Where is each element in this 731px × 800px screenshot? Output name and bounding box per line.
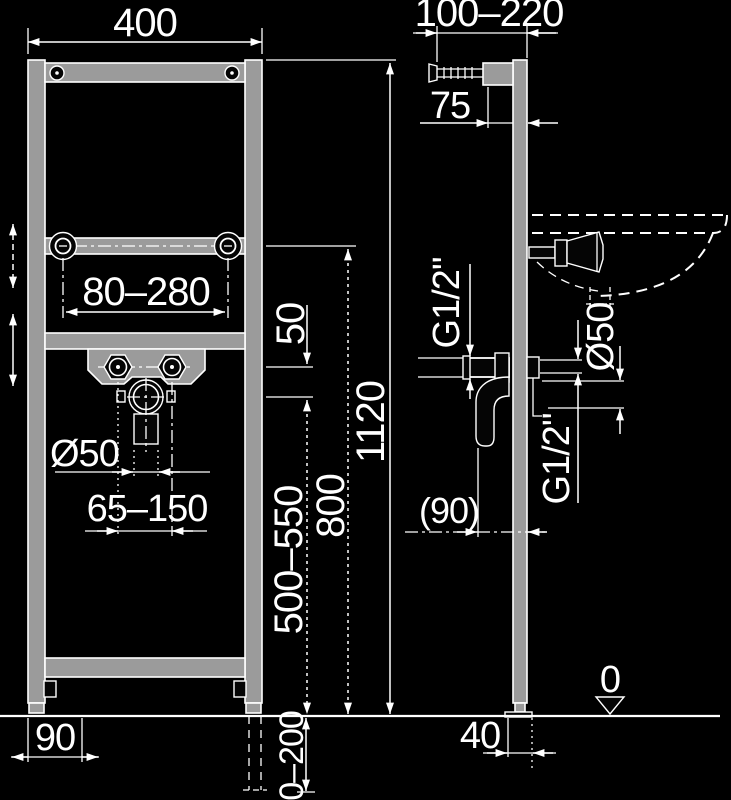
rear-fitting [527,357,542,416]
wall-bracket [483,63,513,85]
lower-crossbar [45,333,245,349]
foot-left [29,703,44,713]
front-view [13,60,267,790]
label-water-thread-right: G1/2" [536,414,578,505]
drain-socket [117,378,175,452]
water-fitting-left [104,355,132,379]
dim-drain-pipe-diameter: Ø50 [580,303,622,372]
label-water-thread-left: G1/2" [426,258,468,349]
dim-wall-distance: 100–220 [415,0,564,35]
front-right-rail [245,60,262,703]
side-view [418,60,727,717]
front-dimensions: 400 80–280 50 500–550 800 1120 0–200 90 [11,1,396,800]
front-left-rail [28,60,45,703]
dim-foot-offset: 90 [35,717,75,759]
dim-profile-depth: 40 [460,715,500,757]
top-bolt-left-dot [55,71,59,75]
mounting-rod-left [50,233,77,260]
anchor-rod [429,64,483,82]
trap-pipe [476,377,509,446]
dim-frame-height: 1120 [349,381,393,463]
side-foot [515,703,525,712]
dim-trap-offset: (90) [419,490,479,531]
anchor-head [429,64,437,82]
top-crossbar [45,63,245,82]
dim-drain-diameter: Ø50 [50,433,119,475]
top-bolt-right-dot [230,71,234,75]
dim-drain-spacing: 65–150 [87,488,208,530]
dim-frame-width: 400 [113,1,177,45]
drawing-canvas: 400 80–280 50 500–550 800 1120 0–200 90 [0,0,731,800]
foot-screw-right [234,681,246,697]
technical-drawing-washbasin-frame: 400 80–280 50 500–550 800 1120 0–200 90 [0,0,731,800]
side-rail [513,60,527,703]
water-fitting-right [158,355,186,379]
bottom-crossbar [45,658,245,677]
dim-rod-spacing: 80–280 [82,270,209,314]
dim-bracket-offset: 75 [430,85,470,127]
dim-drain-height: 500–550 [267,486,311,635]
overflow-fixture [529,232,603,272]
mounting-rod-right [215,233,242,260]
dim-rod-height: 800 [309,474,353,538]
foot-screw-left [44,681,56,697]
dim-faucet-drain-gap: 50 [269,303,313,346]
label-floor-level: 0 [600,659,620,701]
foot-right [246,703,261,713]
below-floor-extension [243,716,267,790]
dim-below-floor: 0–200 [273,711,311,800]
faucet-connection [418,353,509,382]
